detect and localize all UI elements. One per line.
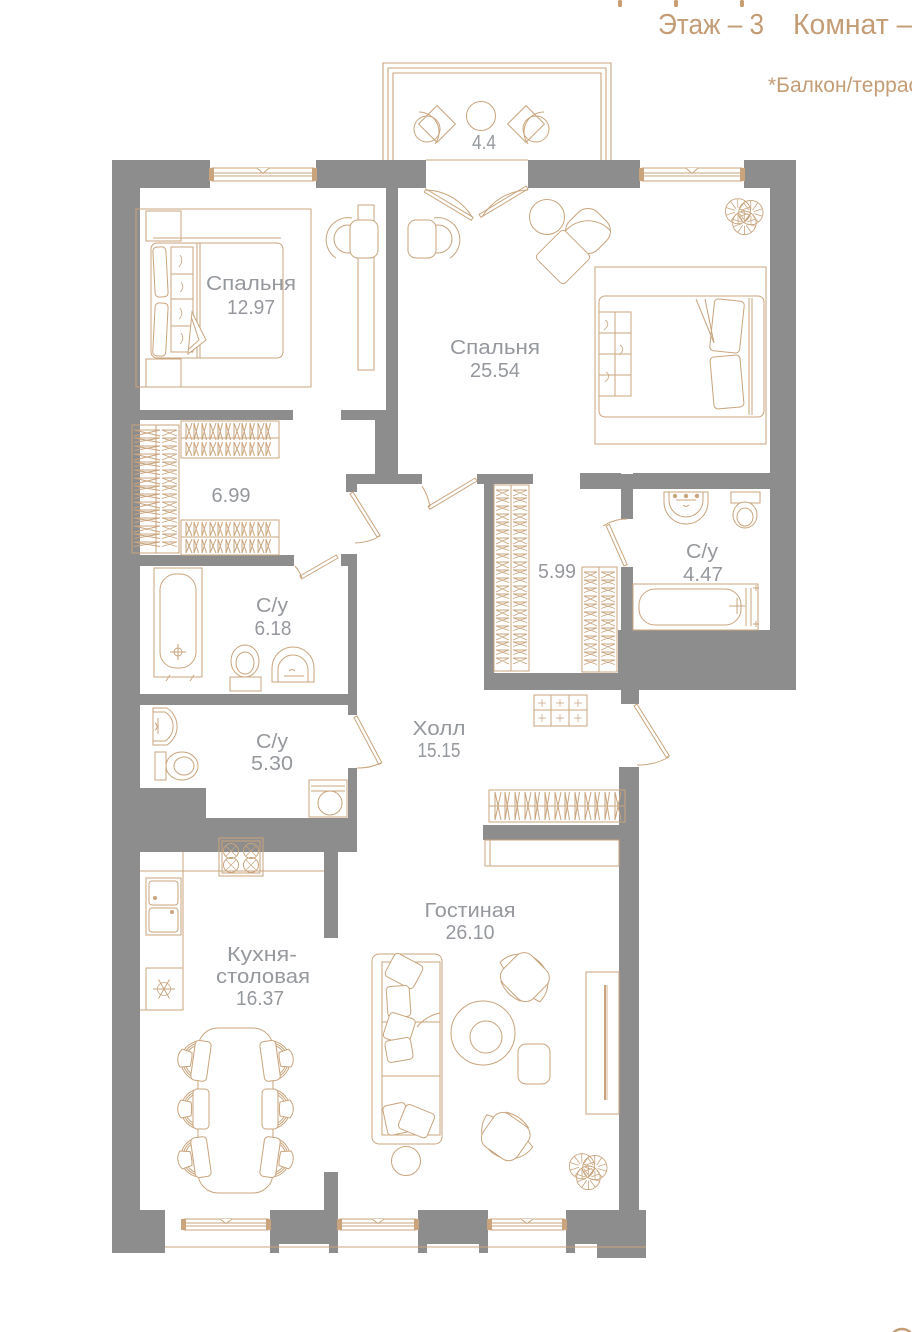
svg-text:Гостиная: Гостиная bbox=[425, 900, 516, 922]
svg-text:4.4: 4.4 bbox=[472, 132, 496, 154]
svg-text:5.99: 5.99 bbox=[538, 561, 576, 583]
svg-text:С/у: С/у bbox=[256, 731, 288, 753]
svg-text:Спальня: Спальня bbox=[206, 273, 296, 295]
svg-text:6.99: 6.99 bbox=[212, 485, 251, 507]
svg-text:Спальня: Спальня bbox=[450, 337, 540, 359]
svg-text:Холл: Холл bbox=[413, 718, 466, 740]
svg-text:столовая: столовая bbox=[216, 966, 310, 988]
svg-text:Этаж – 3: Этаж – 3 bbox=[658, 9, 764, 41]
svg-text:6.18: 6.18 bbox=[255, 618, 292, 640]
svg-text:*Балкон/терраса: *Балкон/терраса bbox=[768, 74, 912, 97]
svg-text:26.10: 26.10 bbox=[446, 922, 495, 944]
svg-text:Комнат – 3: Комнат – 3 bbox=[793, 9, 912, 41]
svg-text:С/у: С/у bbox=[686, 541, 718, 563]
svg-text:Кухня-: Кухня- bbox=[227, 944, 297, 966]
svg-text:25.54: 25.54 bbox=[470, 360, 520, 382]
svg-text:4.47: 4.47 bbox=[683, 564, 723, 586]
svg-text:С/у: С/у bbox=[256, 595, 288, 617]
svg-text:5.30: 5.30 bbox=[251, 753, 293, 775]
svg-text:16.37: 16.37 bbox=[236, 988, 284, 1010]
svg-text:15.15: 15.15 bbox=[418, 740, 461, 762]
svg-text:12.97: 12.97 bbox=[227, 297, 275, 319]
